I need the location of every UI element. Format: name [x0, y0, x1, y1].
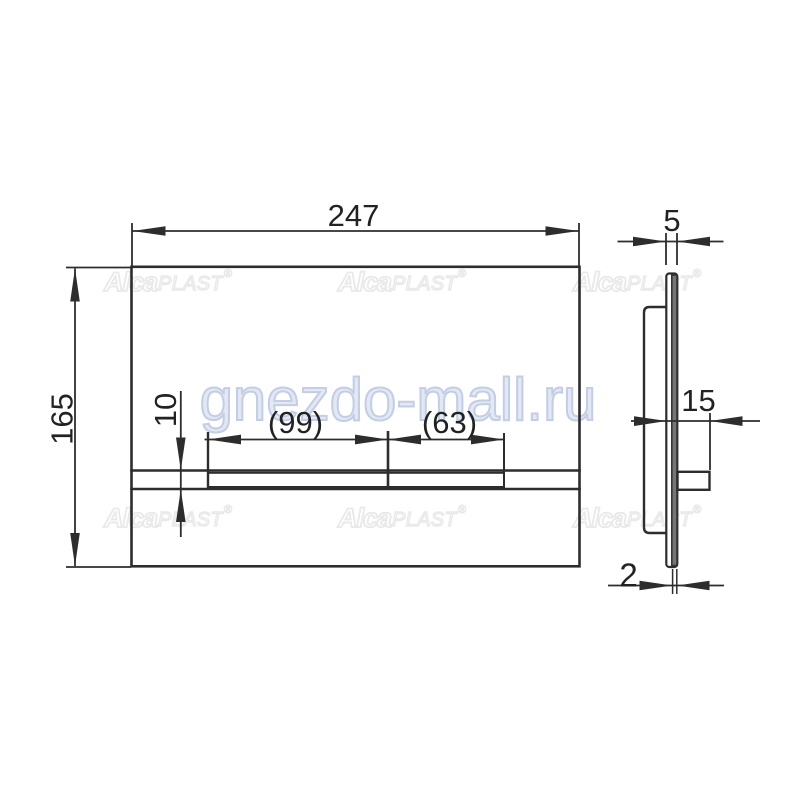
svg-text:165: 165 [45, 393, 80, 445]
svg-text:10: 10 [148, 393, 183, 427]
svg-text:247: 247 [328, 198, 380, 233]
svg-text:(63): (63) [422, 405, 477, 440]
svg-text:2: 2 [619, 557, 637, 594]
svg-text:15: 15 [681, 383, 715, 418]
svg-text:(99): (99) [268, 405, 323, 440]
svg-text:5: 5 [663, 203, 680, 238]
